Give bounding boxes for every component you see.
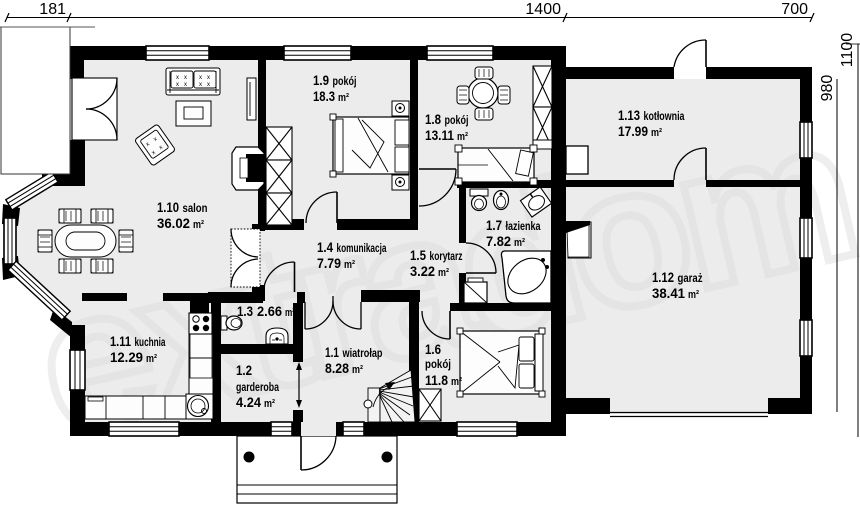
svg-text:pokój: pokój [425,359,451,371]
svg-text:x: x [184,82,187,88]
svg-text:1100: 1100 [839,33,856,68]
svg-text:1.7: 1.7 [486,218,502,233]
svg-text:wiatrołap: wiatrołap [342,348,383,360]
svg-text:1.2: 1.2 [236,363,252,378]
svg-text:1.3: 1.3 [237,304,253,319]
svg-text:x: x [176,82,179,88]
svg-text:pokój: pokój [333,76,357,88]
svg-text:m²: m² [514,237,525,249]
svg-text:1.6: 1.6 [425,342,441,357]
svg-text:x: x [184,75,187,81]
svg-text:1.5: 1.5 [410,248,426,263]
svg-text:x: x [207,82,210,88]
svg-text:kotłownia: kotłownia [644,111,685,123]
svg-text:m²: m² [688,289,699,301]
svg-text:m²: m² [451,376,462,388]
svg-text:łazienka: łazienka [506,221,541,233]
svg-text:1.9: 1.9 [313,73,329,88]
svg-text:x: x [207,75,210,81]
svg-text:7.79: 7.79 [317,256,341,271]
svg-text:m²: m² [285,307,295,319]
svg-text:1.13: 1.13 [618,108,640,123]
svg-text:8.28: 8.28 [325,361,349,376]
svg-text:kuchnia: kuchnia [135,337,166,349]
svg-text:7.82: 7.82 [486,234,511,249]
svg-text:korytarz: korytarz [430,251,463,263]
svg-text:181: 181 [39,1,66,18]
svg-text:980: 980 [819,75,836,102]
svg-text:3.22: 3.22 [410,264,435,279]
svg-text:4.24: 4.24 [236,395,261,410]
svg-text:1.8: 1.8 [425,112,441,127]
svg-text:1.1: 1.1 [325,345,339,360]
svg-text:38.41: 38.41 [652,286,685,301]
svg-text:salon: salon [183,203,208,215]
svg-text:m²: m² [457,131,468,143]
svg-text:x: x [199,82,202,88]
svg-text:m²: m² [651,127,662,139]
svg-text:pokój: pokój [445,115,469,127]
svg-text:18.3: 18.3 [313,89,335,104]
svg-text:m²: m² [438,267,449,279]
svg-text:komunikacja: komunikacja [337,243,387,255]
svg-text:m²: m² [264,398,275,410]
svg-text:2.66: 2.66 [257,304,282,319]
svg-text:1.11: 1.11 [110,334,131,349]
svg-text:x: x [199,75,202,81]
svg-text:1.12: 1.12 [652,270,674,285]
svg-text:1400: 1400 [525,1,561,18]
svg-text:11.8: 11.8 [425,373,448,388]
svg-text:1.4: 1.4 [317,240,333,255]
svg-text:m²: m² [193,219,204,231]
svg-text:m²: m² [344,259,355,271]
svg-text:m²: m² [146,353,157,365]
svg-text:12.29: 12.29 [110,350,143,365]
svg-text:m²: m² [352,364,363,376]
svg-text:garaż: garaż [678,273,703,285]
svg-text:garderoba: garderoba [236,382,279,394]
svg-text:700: 700 [781,1,808,18]
svg-text:36.02: 36.02 [157,216,190,231]
svg-text:1.10: 1.10 [157,200,179,215]
svg-text:x: x [176,75,179,81]
svg-text:17.99: 17.99 [618,124,648,139]
svg-text:13.11: 13.11 [425,128,454,143]
svg-text:m²: m² [338,92,349,104]
